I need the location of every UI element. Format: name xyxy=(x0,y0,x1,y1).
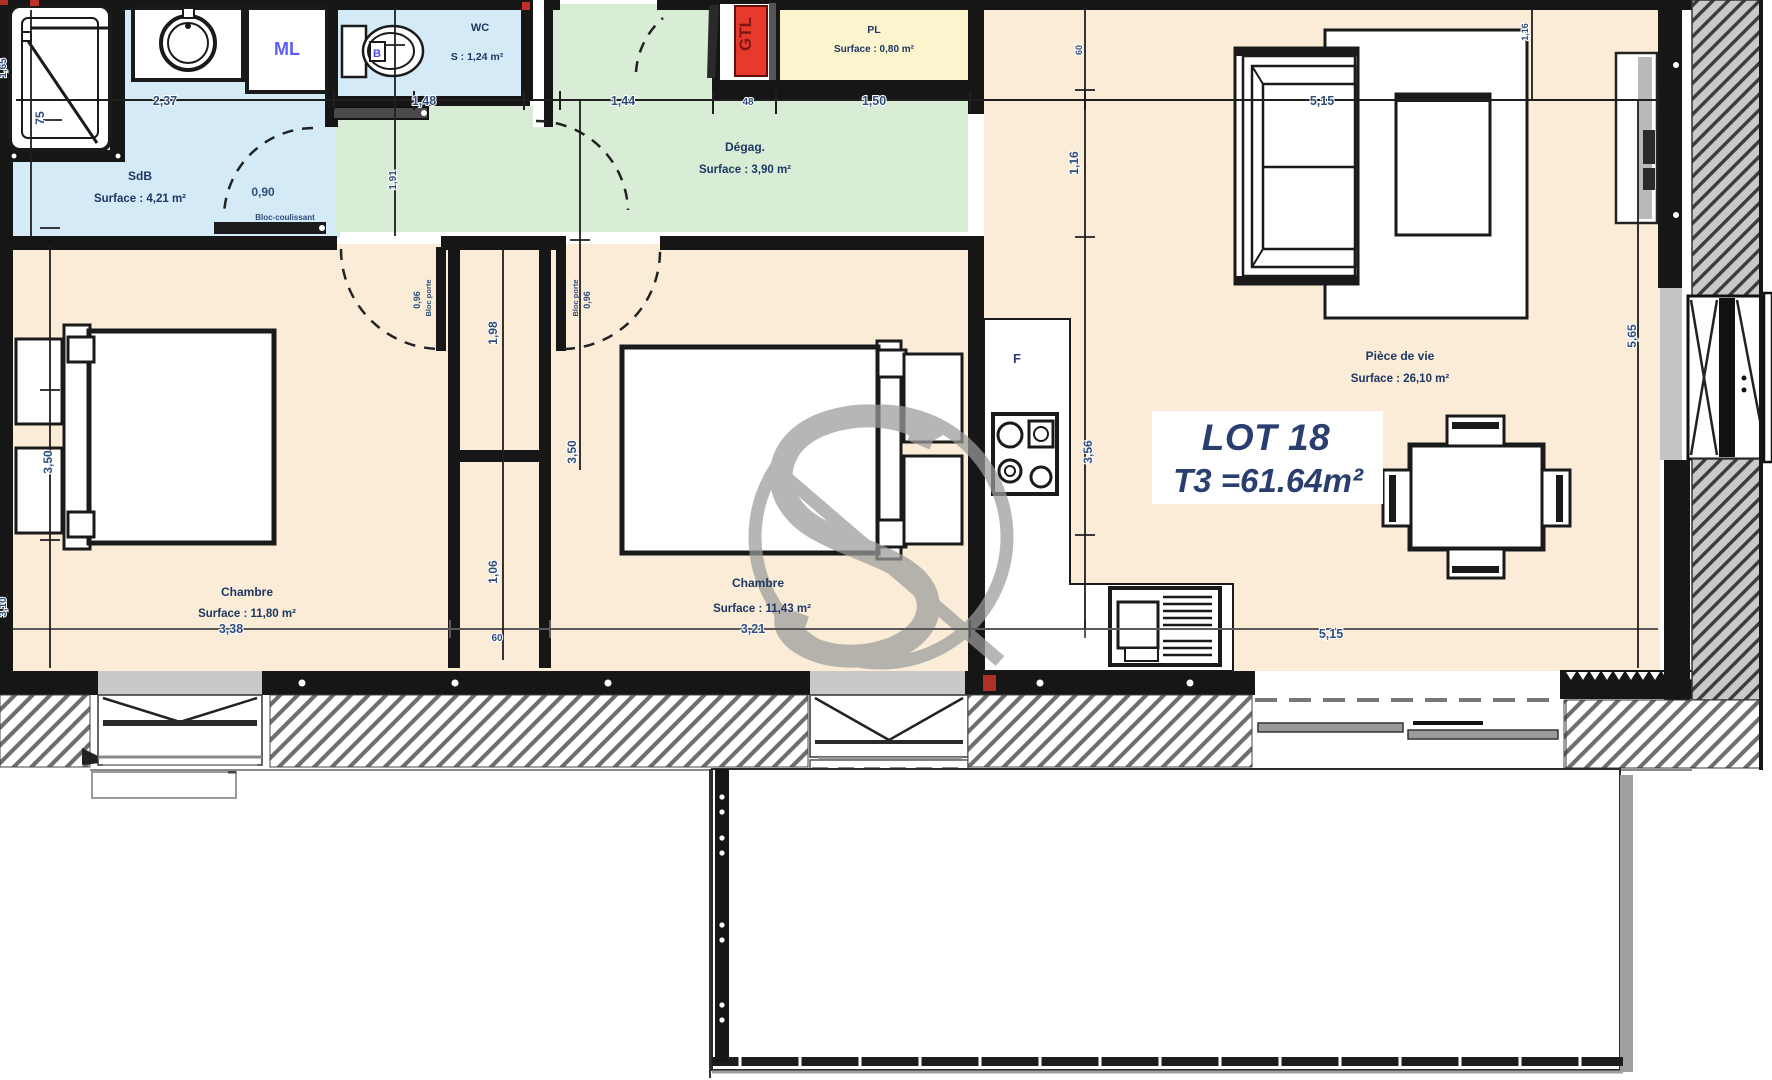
svg-text:5,15: 5,15 xyxy=(1319,627,1343,641)
svg-text:Bloc-coulissant: Bloc-coulissant xyxy=(255,213,315,222)
svg-text:ML: ML xyxy=(274,39,300,59)
svg-text:Chambre: Chambre xyxy=(732,576,784,590)
svg-text:WC: WC xyxy=(471,22,489,34)
svg-text:0,90: 0,90 xyxy=(251,185,275,199)
svg-text:B: B xyxy=(373,48,381,60)
svg-text:Dégag.: Dégag. xyxy=(725,140,765,154)
svg-text:LOT 18: LOT 18 xyxy=(1202,417,1330,458)
svg-text:3,50: 3,50 xyxy=(565,440,579,464)
svg-text:3,21: 3,21 xyxy=(741,622,765,636)
svg-text:Surface : 4,21 m²: Surface : 4,21 m² xyxy=(94,193,186,205)
svg-text:T3 =61.64m²: T3 =61.64m² xyxy=(1173,462,1364,499)
svg-text:0,96: 0,96 xyxy=(412,291,422,309)
svg-text:5,65: 5,65 xyxy=(1625,324,1639,348)
svg-text:Surface : 11,80 m²: Surface : 11,80 m² xyxy=(198,608,296,620)
svg-text:1,06: 1,06 xyxy=(486,560,500,584)
svg-text:1,50: 1,50 xyxy=(862,94,886,108)
svg-text:Surface : 26,10 m²: Surface : 26,10 m² xyxy=(1351,373,1450,385)
svg-text:3,50: 3,50 xyxy=(41,450,55,474)
svg-text:60: 60 xyxy=(1074,45,1084,55)
svg-text:1,16: 1,16 xyxy=(1520,23,1530,41)
svg-text:PL: PL xyxy=(867,24,881,36)
svg-text:48: 48 xyxy=(742,97,754,108)
svg-text:S : 1,24 m²: S : 1,24 m² xyxy=(451,51,504,63)
svg-text:1,65: 1,65 xyxy=(0,58,9,78)
svg-text:1,98: 1,98 xyxy=(486,321,500,345)
svg-text:1,91: 1,91 xyxy=(388,170,399,190)
svg-text:3,56: 3,56 xyxy=(1081,440,1095,464)
svg-text:Surface : 11,43 m²: Surface : 11,43 m² xyxy=(713,603,811,615)
svg-text:Bloc porte: Bloc porte xyxy=(424,279,433,316)
svg-text:Chambre: Chambre xyxy=(221,585,273,599)
svg-text:GTL: GTL xyxy=(736,17,755,51)
svg-text:60: 60 xyxy=(491,633,503,644)
svg-text:Surface : 0,80 m²: Surface : 0,80 m² xyxy=(834,44,915,55)
svg-text:SdB: SdB xyxy=(128,169,152,183)
svg-text:0,96: 0,96 xyxy=(582,291,592,309)
svg-text:1,48: 1,48 xyxy=(412,94,436,108)
svg-text:Bloc porte: Bloc porte xyxy=(571,279,580,316)
svg-text:3,38: 3,38 xyxy=(219,622,243,636)
svg-text:1,44: 1,44 xyxy=(611,94,635,108)
svg-text:5,15: 5,15 xyxy=(1310,94,1334,108)
svg-text:3,10: 3,10 xyxy=(0,597,9,617)
svg-text:F: F xyxy=(1013,351,1021,366)
svg-text:Pièce de vie: Pièce de vie xyxy=(1366,349,1435,363)
svg-text:Surface : 3,90 m²: Surface : 3,90 m² xyxy=(699,164,791,176)
svg-text:75: 75 xyxy=(33,111,47,125)
svg-text:2,37: 2,37 xyxy=(153,94,177,108)
svg-text:1,16: 1,16 xyxy=(1067,151,1081,175)
